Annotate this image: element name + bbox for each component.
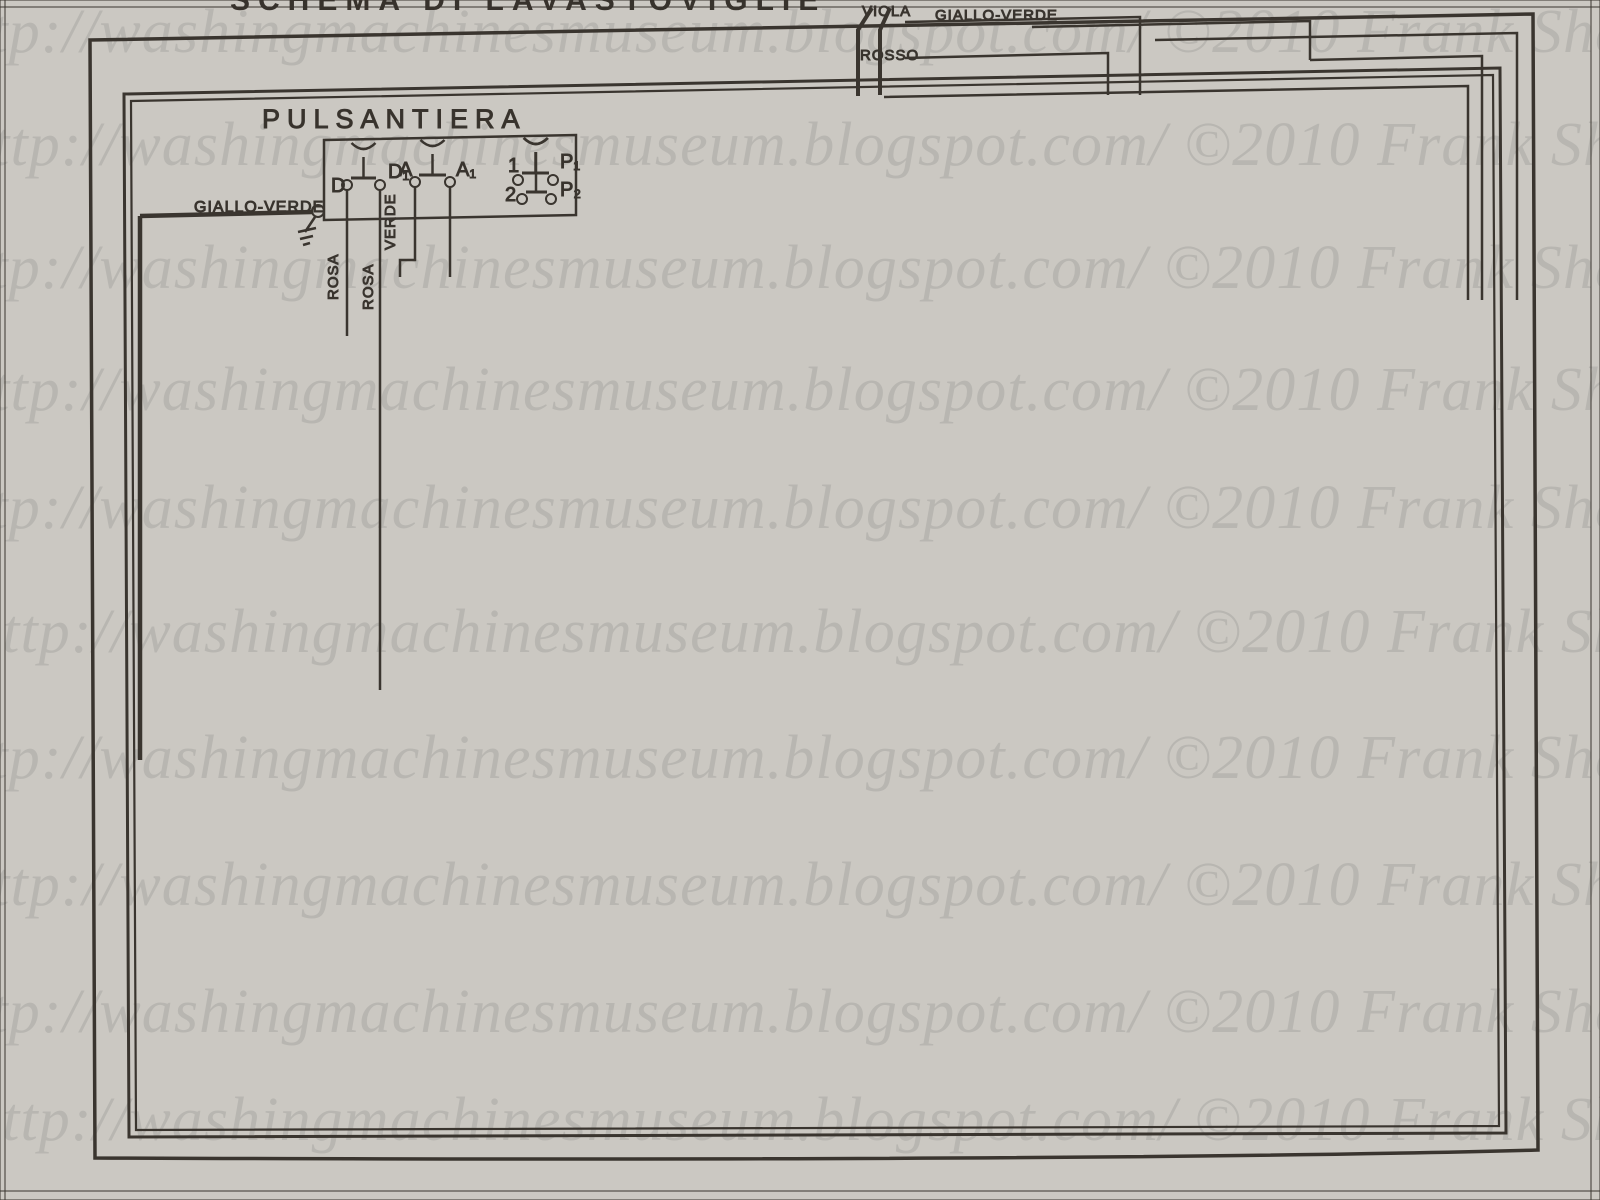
svg-text:http://washingmachinesmuseum.b: http://washingmachinesmuseum.blogspot.co… <box>0 1086 1600 1154</box>
svg-text:2: 2 <box>505 184 516 206</box>
svg-text:VERDE: VERDE <box>382 193 399 250</box>
svg-text:http://washingmachinesmuseum.b: http://washingmachinesmuseum.blogspot.co… <box>0 598 1600 666</box>
svg-text:http://washingmachinesmuseum.b: http://washingmachinesmuseum.blogspot.co… <box>0 851 1600 919</box>
svg-text:http://washingmachinesmuseum.b: http://washingmachinesmuseum.blogspot.co… <box>0 724 1600 792</box>
svg-text:A: A <box>399 159 413 181</box>
svg-text:SCHEMA DI LAVASTOVIGLIE: SCHEMA DI LAVASTOVIGLIE <box>230 0 826 17</box>
svg-text:1: 1 <box>508 155 519 177</box>
svg-text:http://washingmachinesmuseum.b: http://washingmachinesmuseum.blogspot.co… <box>0 978 1600 1046</box>
svg-text:http://washingmachinesmuseum.b: http://washingmachinesmuseum.blogspot.co… <box>0 474 1600 542</box>
svg-text:ROSSO: ROSSO <box>860 47 919 64</box>
svg-text:ROSA: ROSA <box>360 263 377 310</box>
svg-text:GIALLO-VERDE: GIALLO-VERDE <box>935 7 1058 24</box>
svg-text:PULSANTIERA: PULSANTIERA <box>262 104 527 134</box>
svg-text:A₁: A₁ <box>456 159 476 181</box>
svg-text:P₂: P₂ <box>560 179 581 201</box>
svg-text:P₁: P₁ <box>560 151 580 173</box>
svg-text:ROSA: ROSA <box>325 253 342 300</box>
svg-text:http://washingmachinesmuseum.b: http://washingmachinesmuseum.blogspot.co… <box>0 111 1600 179</box>
svg-text:http://washingmachinesmuseum.b: http://washingmachinesmuseum.blogspot.co… <box>0 234 1600 302</box>
svg-text:VIOLA: VIOLA <box>862 3 911 20</box>
svg-text:http://washingmachinesmuseum.b: http://washingmachinesmuseum.blogspot.co… <box>0 356 1600 424</box>
svg-text:D: D <box>331 175 345 197</box>
